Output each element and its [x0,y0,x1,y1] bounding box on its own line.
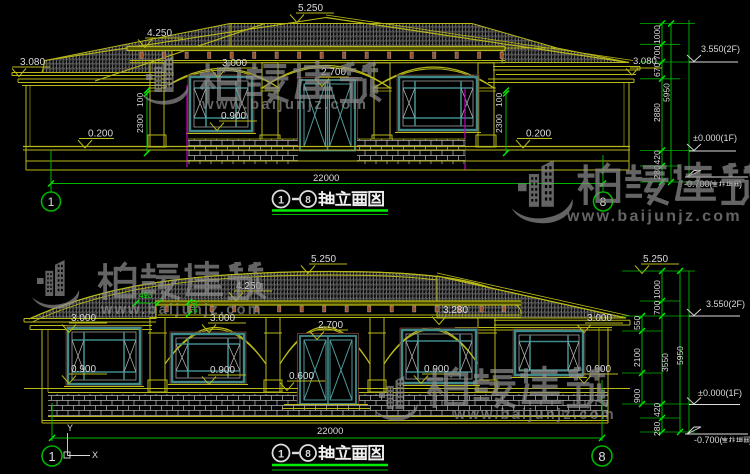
svg-text:±0.000(1F): ±0.000(1F) [693,133,737,143]
svg-text:0.900: 0.900 [210,365,235,376]
svg-text:Y: Y [67,423,73,433]
svg-text:100: 100 [135,93,145,107]
svg-text:1: 1 [48,195,55,209]
svg-text:1: 1 [48,449,55,464]
svg-text:±0.000(1F): ±0.000(1F) [698,388,742,398]
svg-text:www.baijunjz.com: www.baijunjz.com [566,208,742,225]
svg-text:3.000: 3.000 [587,313,612,324]
svg-text:5950: 5950 [675,346,685,365]
svg-text:1000: 1000 [652,280,662,299]
svg-text:2300: 2300 [494,114,504,133]
svg-text:4.250: 4.250 [147,28,172,39]
svg-text:100: 100 [494,93,504,107]
svg-text:-0.700(: -0.700( [694,435,723,445]
svg-text:0.600: 0.600 [289,371,314,382]
svg-text:0.200: 0.200 [526,129,551,140]
svg-text:www.baijunjz.com: www.baijunjz.com [100,302,263,318]
svg-text:3.000: 3.000 [71,313,96,324]
svg-text:X: X [92,450,98,460]
svg-text:5950: 5950 [662,83,672,102]
svg-text:550: 550 [632,316,642,330]
svg-text:22000: 22000 [313,173,339,184]
svg-text:1000: 1000 [652,25,662,44]
svg-text:3.550(2F): 3.550(2F) [701,44,740,54]
svg-text:0.200: 0.200 [88,129,113,140]
svg-text:3.080: 3.080 [633,56,657,67]
svg-text:www.baijunjz.com: www.baijunjz.com [201,96,368,113]
svg-text:5.250: 5.250 [298,3,323,14]
svg-text:700: 700 [652,301,662,315]
svg-text:8: 8 [598,449,605,464]
svg-text:3.080: 3.080 [20,57,45,68]
svg-text:900: 900 [632,389,642,403]
svg-text:1: 1 [278,195,284,207]
svg-text:8: 8 [305,449,311,460]
svg-text:2880: 2880 [652,103,662,122]
svg-text:www.baijunjz.com: www.baijunjz.com [453,407,616,423]
svg-text:3.550(2F): 3.550(2F) [706,299,745,309]
svg-text:2.700: 2.700 [318,320,343,331]
svg-text:0.900: 0.900 [71,364,96,375]
svg-text:5.250: 5.250 [311,254,336,265]
svg-text:8: 8 [305,195,311,206]
svg-text:420: 420 [652,150,662,164]
svg-text:3550: 3550 [660,353,670,372]
svg-text:3.280: 3.280 [443,305,468,316]
svg-text:420: 420 [652,403,662,417]
svg-text:22000: 22000 [317,426,343,437]
svg-text:1: 1 [278,449,284,461]
svg-text:280: 280 [652,422,662,436]
svg-text:5.250: 5.250 [643,254,668,265]
svg-text:2100: 2100 [632,348,642,367]
svg-text:2300: 2300 [135,114,145,133]
